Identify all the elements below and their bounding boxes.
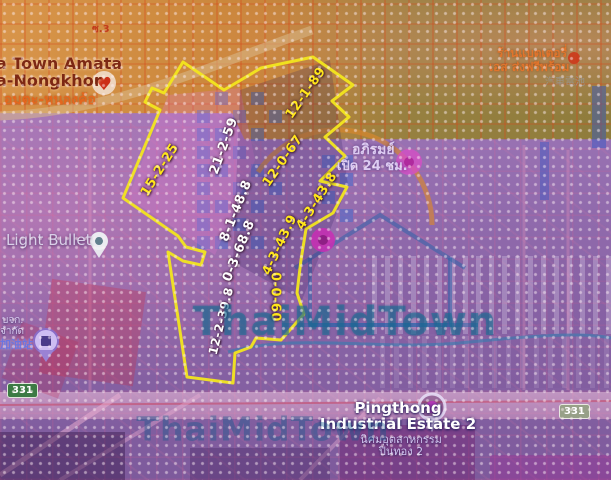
map-labels-layer: 15-2-25 21-2-59 12-1-89 12-0-67 8-1-48.8… <box>0 0 611 480</box>
parcel-area-label: 21-2-59 <box>207 115 241 176</box>
battery-shop-cn-label: 汽車電池 <box>545 73 585 88</box>
town-name-thai-label: อมตะ-หนองค้อ <box>4 89 96 111</box>
parcel-area-label: 4-3-43.8 <box>293 169 340 232</box>
gas-station-cn-label: 加油站 <box>0 336 33 352</box>
map-canvas[interactable]: ♥ 15-2-25 21-2-59 <box>0 0 611 480</box>
light-bullet-label: Light Bullet <box>6 231 91 249</box>
route-331-shield: 331 <box>559 404 590 419</box>
thaimidtown-watermark: ThaiMidTown <box>136 410 389 449</box>
parcel-area-label: 12-0-67 <box>260 132 306 189</box>
open24-place-label: เปิด 24 ชม. <box>337 155 408 176</box>
town-name-label: a-Nongkhor <box>0 71 102 90</box>
parcel-area-label: 12-1-89 <box>283 64 329 121</box>
route-331-shield: 331 <box>7 383 38 398</box>
thaimidtown-watermark: ThaiMidTown <box>193 299 498 345</box>
soi-road-label: ซ.3 <box>92 22 110 37</box>
parcel-area-label: 15-2-25 <box>138 141 182 199</box>
